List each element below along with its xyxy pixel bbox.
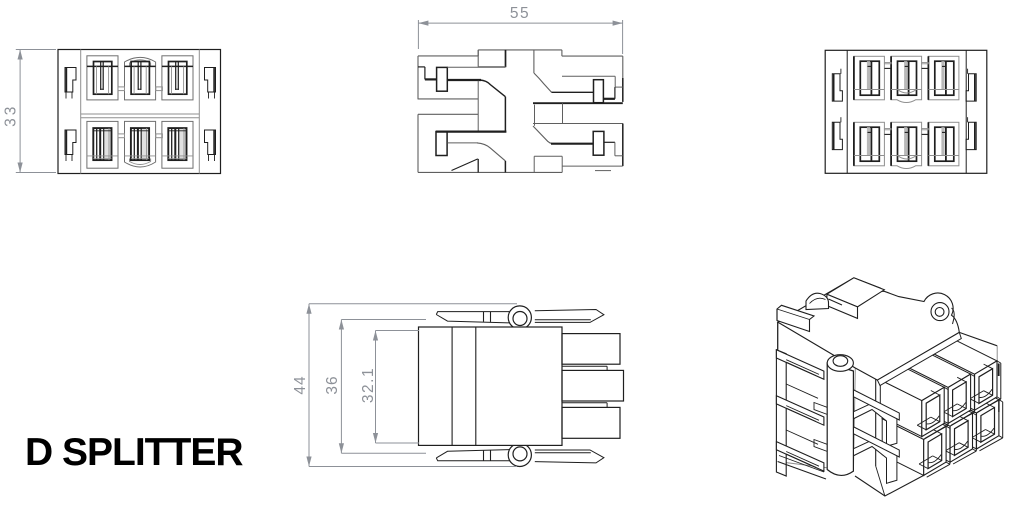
svg-text:32.1: 32.1 [360,367,377,403]
svg-text:44: 44 [292,375,309,394]
svg-text:55: 55 [510,5,530,22]
svg-text:33: 33 [3,104,20,127]
svg-text:36: 36 [324,375,341,394]
